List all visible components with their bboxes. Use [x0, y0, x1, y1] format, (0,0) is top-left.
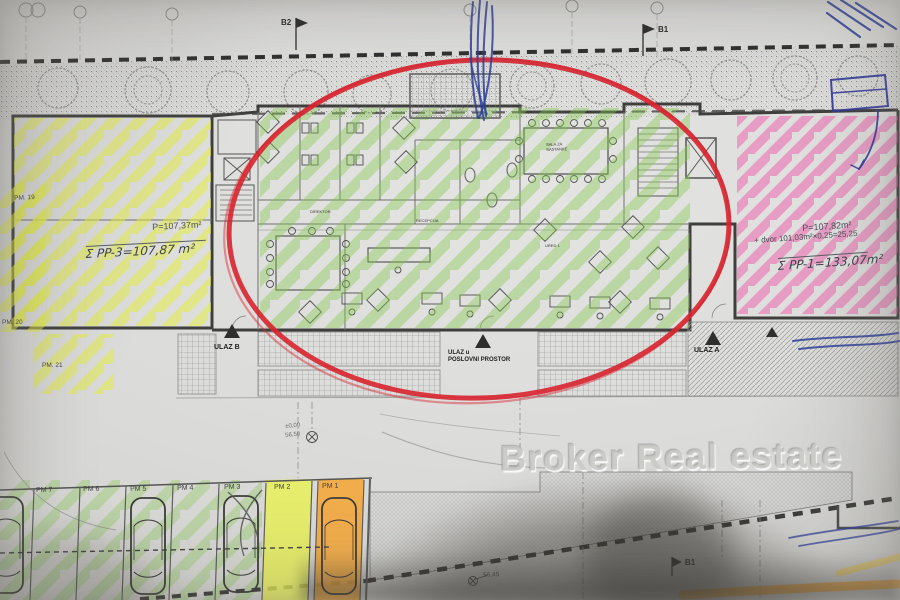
watermark: Broker Real estate [500, 434, 844, 480]
orange-marker-streaks [683, 557, 899, 595]
annotations-overlay [0, 0, 900, 600]
red-circle-annotation [215, 46, 738, 416]
floorplan-photo: P=107,37m² Σ PP-3=107,87 m² P=107,82m² +… [0, 0, 900, 600]
